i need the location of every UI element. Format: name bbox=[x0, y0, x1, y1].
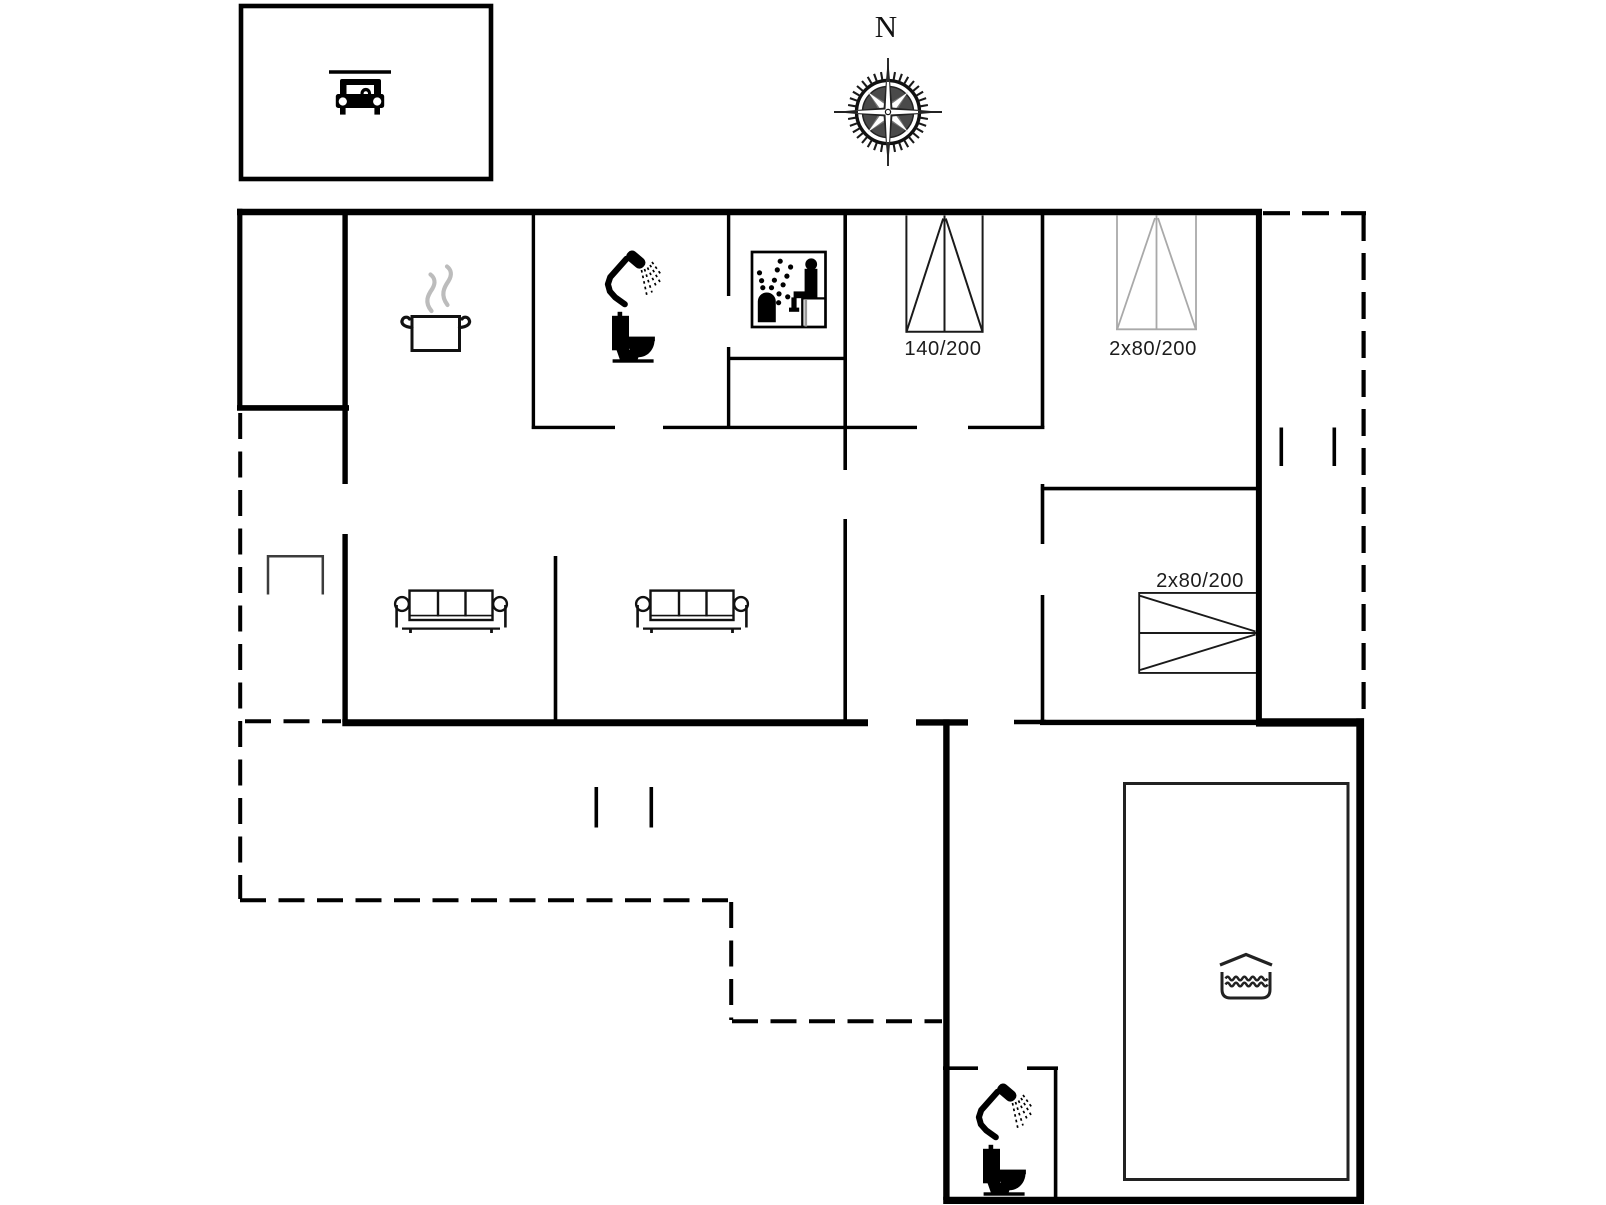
svg-text:140/200: 140/200 bbox=[904, 338, 981, 360]
svg-text:2x80/200: 2x80/200 bbox=[1156, 570, 1244, 592]
svg-text:2x80/200: 2x80/200 bbox=[1109, 338, 1197, 360]
svg-text:N: N bbox=[875, 9, 897, 44]
